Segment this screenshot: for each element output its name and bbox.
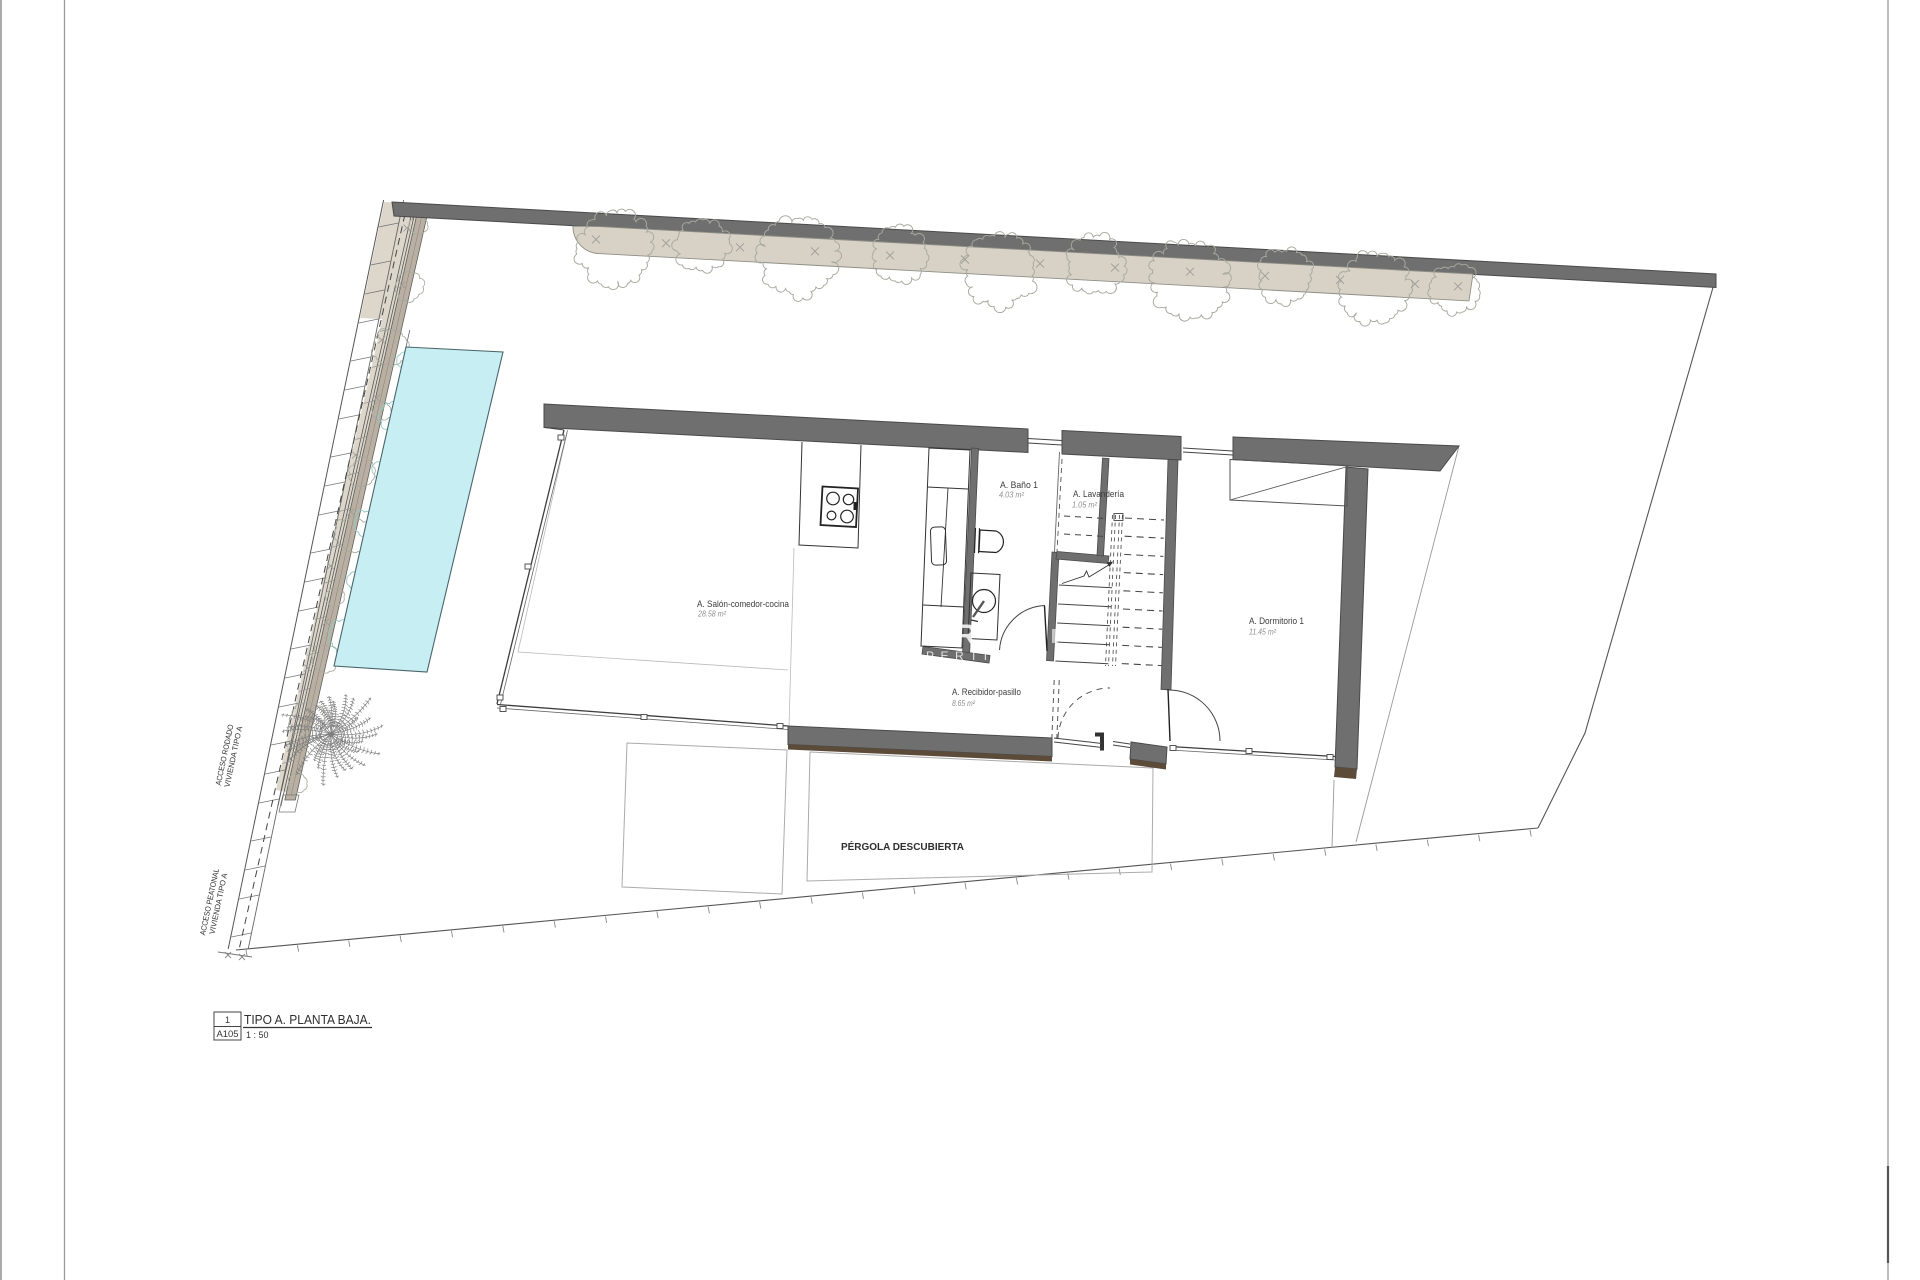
svg-text:A. Salón-comedor-cocina: A. Salón-comedor-cocina [697, 599, 790, 610]
svg-text:1.05 m²: 1.05 m² [1072, 501, 1097, 510]
svg-text:A105: A105 [217, 1029, 239, 1039]
svg-text:8.65 m²: 8.65 m² [952, 699, 975, 708]
svg-text:1: 1 [225, 1015, 230, 1025]
svg-text:A. Dormitorio 1: A. Dormitorio 1 [1249, 616, 1304, 627]
svg-text:A. Lavandería: A. Lavandería [1073, 489, 1125, 500]
svg-text:PERTIE: PERTIE [926, 649, 1008, 663]
svg-text:28.58 m²: 28.58 m² [697, 610, 726, 619]
svg-text:1 : 50: 1 : 50 [246, 1030, 269, 1040]
svg-text:A. Baño 1: A. Baño 1 [1000, 480, 1038, 491]
svg-text:11.45 m²: 11.45 m² [1249, 628, 1276, 637]
svg-text:TIPO A. PLANTA BAJA.: TIPO A. PLANTA BAJA. [244, 1012, 371, 1027]
svg-text:4.03 m²: 4.03 m² [999, 491, 1024, 500]
svg-text:PÉRGOLA DESCUBIERTA: PÉRGOLA DESCUBIERTA [841, 840, 964, 853]
svg-text:R: R [955, 619, 977, 652]
svg-text:A. Recibidor-pasillo: A. Recibidor-pasillo [952, 687, 1021, 698]
